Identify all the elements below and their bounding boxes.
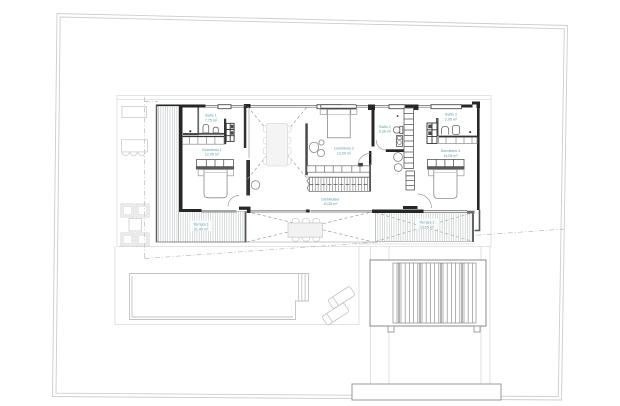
svg-text:Baño 1: Baño 1 — [205, 114, 216, 118]
svg-text:Dormitorio 4: Dormitorio 4 — [441, 149, 461, 153]
svg-text:31,45 m²: 31,45 m² — [194, 227, 209, 231]
svg-text:Terraza 1: Terraza 1 — [194, 223, 209, 227]
svg-text:13,15 m²: 13,15 m² — [420, 225, 435, 229]
svg-text:12,05 m²: 12,05 m² — [205, 153, 220, 157]
svg-text:14,05 m²: 14,05 m² — [443, 154, 458, 158]
svg-text:Baño 2: Baño 2 — [379, 125, 390, 129]
svg-text:Dormitorio 2: Dormitorio 2 — [334, 147, 354, 151]
svg-text:6,36 m²: 6,36 m² — [379, 130, 392, 134]
svg-text:10,28 m²: 10,28 m² — [323, 202, 338, 206]
svg-text:2,95 m²: 2,95 m² — [445, 117, 458, 121]
svg-text:7,75 m²: 7,75 m² — [205, 118, 218, 122]
svg-text:Distribuidor: Distribuidor — [321, 197, 340, 201]
svg-text:Dormitorio 1: Dormitorio 1 — [202, 148, 222, 152]
svg-text:13,00 m²: 13,00 m² — [337, 151, 352, 155]
svg-text:Terraza 2: Terraza 2 — [420, 221, 435, 225]
svg-text:Baño 3: Baño 3 — [445, 113, 456, 117]
